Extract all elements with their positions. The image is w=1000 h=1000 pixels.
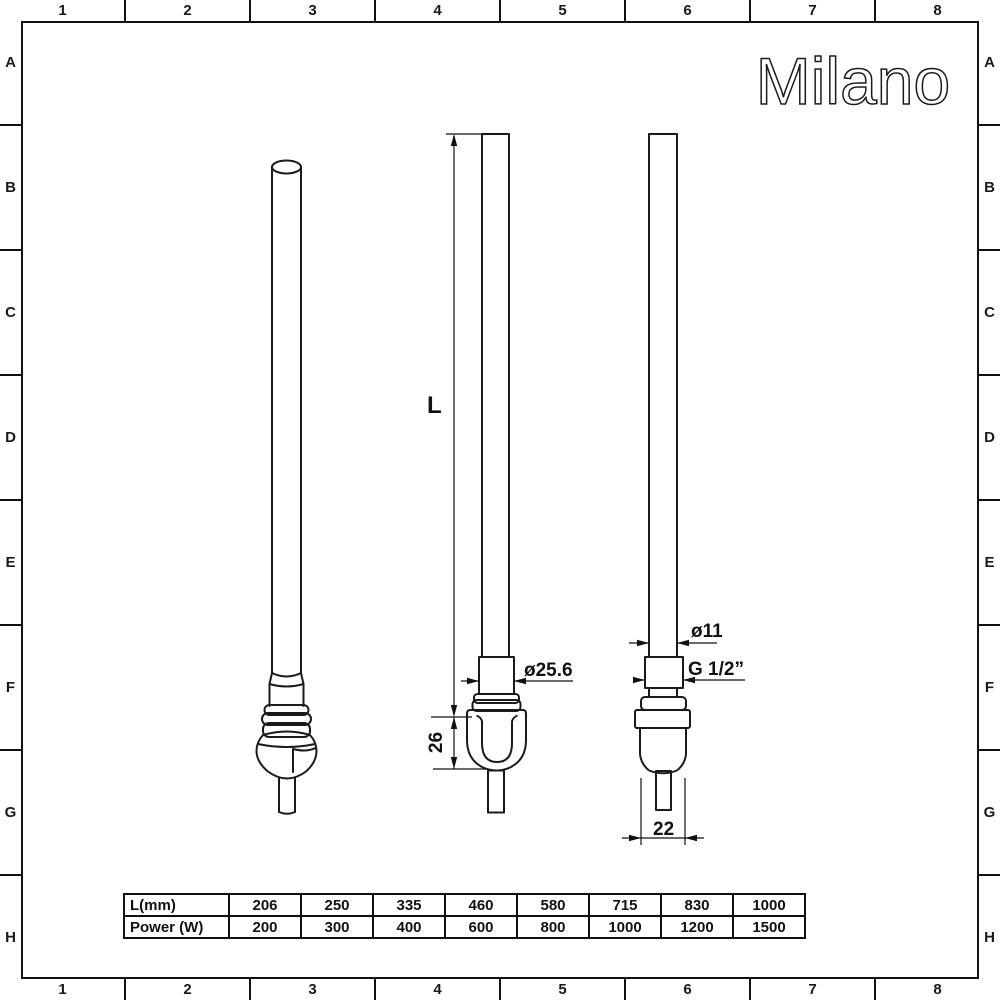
- grid-row-label: G: [0, 750, 21, 875]
- grid-col-label: 4: [375, 979, 500, 1000]
- grid-row-label: C: [979, 250, 1000, 375]
- table-cell: 1000: [733, 894, 805, 916]
- table-cell: 1500: [733, 916, 805, 938]
- grid-row-label: A: [979, 0, 1000, 125]
- grid-row-label: F: [0, 625, 21, 750]
- table-cell: 580: [517, 894, 589, 916]
- view-isometric: [257, 161, 317, 814]
- table-cell: 400: [373, 916, 445, 938]
- length-dimension-label: L: [427, 394, 442, 418]
- table-cell: 460: [445, 894, 517, 916]
- grid-row-label: E: [979, 500, 1000, 625]
- body-height-26-label: 26: [427, 732, 446, 753]
- table-cell: 800: [517, 916, 589, 938]
- table-cell: 830: [661, 894, 733, 916]
- table-cell: 1000: [589, 916, 661, 938]
- table-cell: 206: [229, 894, 301, 916]
- dimension-arrows: [451, 134, 697, 841]
- grid-col-label: 7: [750, 0, 875, 21]
- grid-row-label: G: [979, 750, 1000, 875]
- drawing-sheet: Milano: [0, 0, 1000, 1000]
- row-header-power: Power (W): [124, 916, 229, 938]
- grid-col-label: 2: [125, 0, 250, 21]
- grid-col-label: 3: [250, 979, 375, 1000]
- row-header-length: L(mm): [124, 894, 229, 916]
- grid-col-label: 6: [625, 0, 750, 21]
- grid-col-label: 2: [125, 979, 250, 1000]
- grid-row-label: A: [0, 0, 21, 125]
- thread-g-half-label: G 1/2”: [688, 660, 744, 679]
- table-cell: 250: [301, 894, 373, 916]
- milano-logo: Milano: [756, 44, 950, 118]
- grid-col-label: 7: [750, 979, 875, 1000]
- grid-row-label: B: [0, 125, 21, 250]
- table-cell: 335: [373, 894, 445, 916]
- grid-col-label: 4: [375, 0, 500, 21]
- table-cell: 200: [229, 916, 301, 938]
- diameter-11-label: ø11: [691, 622, 723, 641]
- grid-row-label: D: [0, 375, 21, 500]
- grid-col-label: 5: [500, 0, 625, 21]
- grid-row-label: D: [979, 375, 1000, 500]
- dimension-lines: [431, 134, 745, 845]
- table-cell: 300: [301, 916, 373, 938]
- view-front: [467, 134, 526, 813]
- grid-row-label: F: [979, 625, 1000, 750]
- grid-row-label: H: [979, 875, 1000, 1000]
- table-row-length: L(mm) 206 250 335 460 580 715 830 1000: [124, 894, 805, 916]
- grid-row-label: C: [0, 250, 21, 375]
- grid-row-label: H: [0, 875, 21, 1000]
- sheet-frame: [0, 0, 1000, 1000]
- technical-drawing: Milano: [0, 0, 1000, 1000]
- grid-col-label: 3: [250, 0, 375, 21]
- view-side: [635, 134, 690, 810]
- logo-text: Milano: [756, 44, 950, 118]
- body-width-22-label: 22: [653, 820, 674, 839]
- grid-row-label: E: [0, 500, 21, 625]
- table-cell: 1200: [661, 916, 733, 938]
- grid-row-label: B: [979, 125, 1000, 250]
- table-cell: 715: [589, 894, 661, 916]
- table-row-power: Power (W) 200 300 400 600 800 1000 1200 …: [124, 916, 805, 938]
- table-cell: 600: [445, 916, 517, 938]
- diameter-25-6-label: ø25.6: [524, 661, 573, 680]
- spec-table: L(mm) 206 250 335 460 580 715 830 1000 P…: [123, 893, 806, 939]
- grid-col-label: 6: [625, 979, 750, 1000]
- grid-col-label: 5: [500, 979, 625, 1000]
